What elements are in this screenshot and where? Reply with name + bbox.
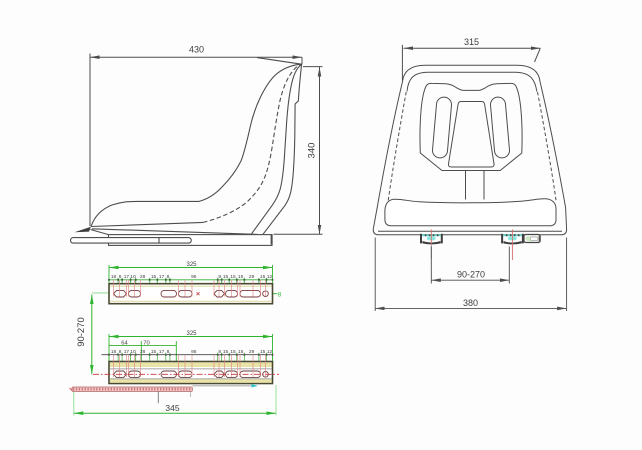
svg-text:29: 29 xyxy=(249,274,255,280)
svg-text:90-270: 90-270 xyxy=(76,317,87,347)
svg-text:15: 15 xyxy=(223,274,229,280)
svg-text:17: 17 xyxy=(159,274,165,280)
svg-text:64: 64 xyxy=(121,340,128,346)
svg-text:340: 340 xyxy=(307,143,318,159)
svg-text:325: 325 xyxy=(186,331,197,337)
svg-text:430: 430 xyxy=(189,45,204,55)
svg-text:95: 95 xyxy=(191,274,197,280)
svg-text:15: 15 xyxy=(230,274,236,280)
svg-text:15: 15 xyxy=(151,349,157,355)
svg-text:345: 345 xyxy=(165,403,179,413)
svg-text:17: 17 xyxy=(124,349,130,355)
svg-text:95: 95 xyxy=(191,349,197,355)
svg-text:18: 18 xyxy=(111,349,117,355)
svg-text:380: 380 xyxy=(463,298,478,308)
svg-text:15: 15 xyxy=(238,274,244,280)
svg-text:17: 17 xyxy=(124,274,130,280)
svg-text:15: 15 xyxy=(260,349,266,355)
svg-text:15: 15 xyxy=(238,349,244,355)
svg-text:28: 28 xyxy=(140,274,146,280)
svg-text:15: 15 xyxy=(151,274,157,280)
svg-text:70: 70 xyxy=(143,340,149,346)
svg-text:8: 8 xyxy=(278,292,282,298)
svg-text:17: 17 xyxy=(159,349,165,355)
svg-text:15: 15 xyxy=(223,349,229,355)
svg-text:325: 325 xyxy=(186,262,197,268)
svg-text:315: 315 xyxy=(464,37,479,47)
svg-text:29: 29 xyxy=(249,349,255,355)
svg-text:15: 15 xyxy=(260,274,266,280)
svg-text:90-270: 90-270 xyxy=(457,270,485,280)
svg-text:15: 15 xyxy=(230,349,236,355)
svg-text:18: 18 xyxy=(111,274,117,280)
svg-text:28: 28 xyxy=(140,349,146,355)
